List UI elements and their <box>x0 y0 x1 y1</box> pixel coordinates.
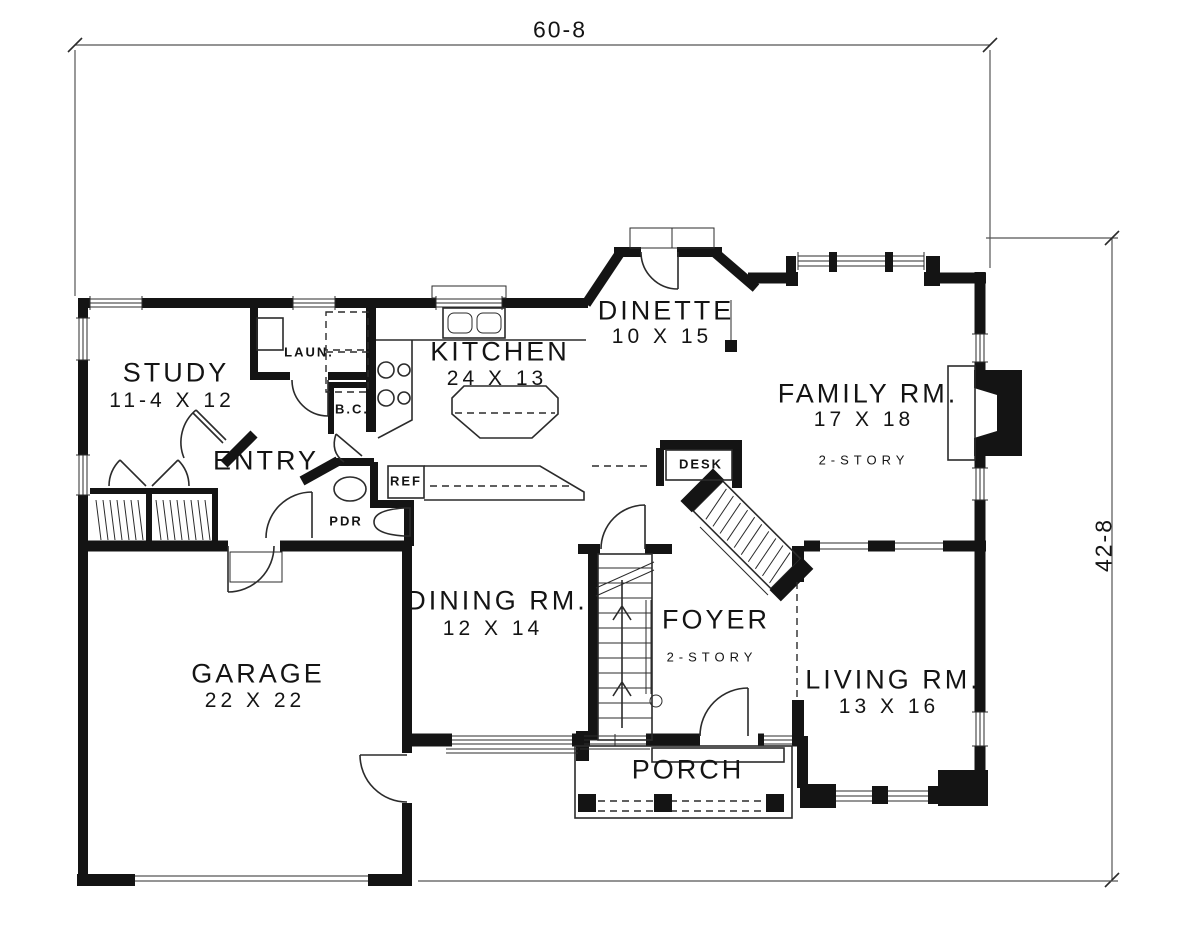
staircase <box>596 554 662 740</box>
closet-rod-hatching <box>96 500 210 540</box>
dinette-size: 10 X 15 <box>612 325 712 349</box>
family-room-size: 17 X 18 <box>814 408 914 432</box>
dinette-door <box>641 252 678 289</box>
study-size: 11-4 X 12 <box>109 389 235 413</box>
family-room-label: FAMILY RM. <box>778 379 959 410</box>
coat-closet <box>680 468 813 601</box>
garage-label: GARAGE <box>191 659 325 690</box>
broom-closet-door <box>334 434 362 462</box>
living-room-label: LIVING RM. <box>805 665 981 696</box>
family-room-note: 2-STORY <box>819 453 910 468</box>
kitchen-size: 24 X 13 <box>447 367 547 391</box>
overall-width-dimension: 60-8 <box>533 17 587 44</box>
porch-label: PORCH <box>632 755 745 786</box>
garage-door <box>135 876 368 881</box>
powder-sink <box>334 477 366 501</box>
living-room-size: 13 X 16 <box>839 695 939 719</box>
powder-room-label: PDR <box>329 514 362 529</box>
laundry-door <box>292 380 328 416</box>
range-burners <box>378 362 410 406</box>
dining-room-label: DINING RM. <box>406 586 588 617</box>
dinette-label: DINETTE <box>598 296 735 327</box>
garage-service-door <box>360 755 407 802</box>
dining-room-size: 12 X 14 <box>443 617 543 641</box>
laundry-label: LAUN. <box>284 345 334 360</box>
peninsula-counter <box>424 466 584 500</box>
laundry-tub <box>257 318 283 350</box>
closet-doors <box>109 460 189 486</box>
floor-plan-drawing <box>0 0 1200 933</box>
kitchen-sink <box>443 308 505 338</box>
overall-height-dimension: 42-8 <box>1091 518 1118 572</box>
foyer-note: 2-STORY <box>667 650 758 665</box>
kitchen-label: KITCHEN <box>430 337 570 368</box>
garage-size: 22 X 22 <box>205 689 305 713</box>
floor-plan: 60-8 42-8 STUDY 11-4 X 12 LAUN. B.C. ENT… <box>0 0 1200 933</box>
front-door <box>700 688 748 736</box>
garage-entry-door <box>228 546 282 592</box>
stair-hall-door <box>601 505 645 549</box>
desk-label: DESK <box>679 457 723 472</box>
broom-closet-label: B.C. <box>335 402 369 417</box>
closet-door-line <box>700 527 768 595</box>
kitchen-island <box>452 386 558 438</box>
entry-label: ENTRY <box>213 446 319 477</box>
foyer-label: FOYER <box>662 605 770 636</box>
refrigerator-label: REF <box>390 474 422 489</box>
fireplace <box>948 366 1022 460</box>
powder-room-door <box>266 492 312 538</box>
study-label: STUDY <box>123 358 230 389</box>
